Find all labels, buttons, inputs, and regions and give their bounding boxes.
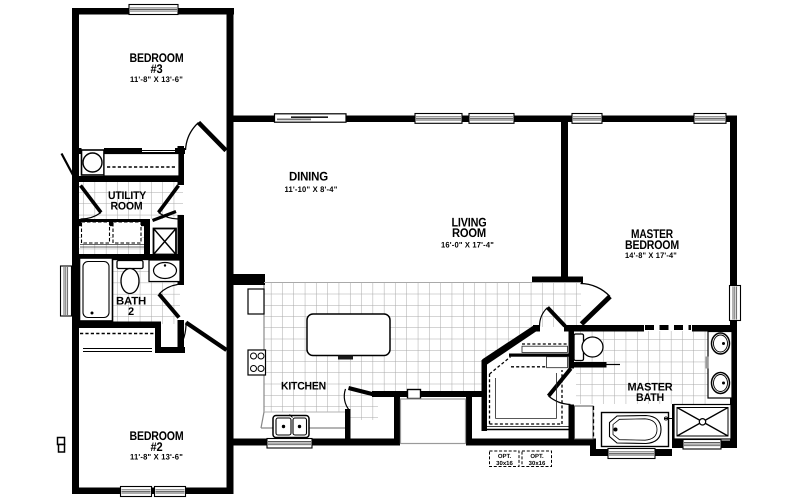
svg-text:ROOM: ROOM [452, 226, 486, 240]
svg-text:DINING: DINING [289, 170, 328, 184]
svg-text:ROOM: ROOM [111, 201, 143, 213]
svg-text:BEDROOM: BEDROOM [625, 238, 679, 252]
svg-text:30x16: 30x16 [529, 460, 546, 467]
svg-text:OPT.: OPT. [530, 453, 544, 460]
svg-text:OPT.: OPT. [498, 453, 512, 460]
svg-text:2: 2 [128, 306, 134, 318]
svg-text:#3: #3 [151, 62, 163, 76]
svg-text:KITCHEN: KITCHEN [281, 381, 326, 393]
svg-text:14'-8" X 17'-4": 14'-8" X 17'-4" [625, 251, 677, 260]
svg-text:11'-8" X 13'-6": 11'-8" X 13'-6" [130, 75, 183, 84]
svg-text:30x16: 30x16 [496, 460, 513, 467]
svg-text:11'-8" X 13'-6": 11'-8" X 13'-6" [130, 453, 183, 462]
svg-text:11'-10" X 8'-4": 11'-10" X 8'-4" [285, 185, 338, 194]
svg-text:16'-0" X 17'-4": 16'-0" X 17'-4" [441, 241, 494, 250]
svg-text:BATH: BATH [636, 392, 664, 404]
